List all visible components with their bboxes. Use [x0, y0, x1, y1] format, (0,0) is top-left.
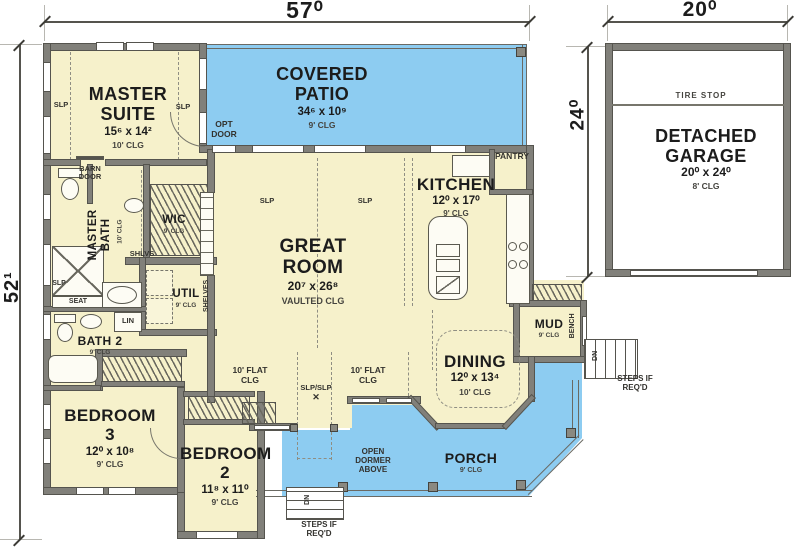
open-dormer-label: OPEN DORMER ABOVE [346, 448, 400, 475]
patio-rail-right [522, 44, 527, 150]
flat-clg-label-left: 10' FLAT CLG [222, 366, 278, 385]
tub-master-basin [107, 286, 137, 304]
room-clg-wic: 9' CLG [156, 228, 192, 235]
garage-wall [606, 44, 612, 276]
dormer-line [297, 352, 298, 460]
wall [106, 160, 206, 165]
window [196, 531, 238, 539]
bedroom2-closet-hatch [242, 402, 276, 424]
tub-bath2 [48, 355, 98, 383]
room-size-kitchen: 12⁰ x 17⁰ [414, 195, 498, 208]
porch-post [516, 480, 526, 490]
wall [208, 150, 214, 192]
flat-clg-label-right: 10' FLAT CLG [340, 366, 396, 385]
dim-house-width: 57⁰ [250, 0, 360, 24]
pantry-label: PANTRY [492, 152, 532, 162]
room-label-mud: MUD [526, 318, 572, 331]
steps-label-right: STEPS IF REQ'D [606, 375, 664, 393]
room-clg-master-bath: 10' CLG [116, 212, 123, 252]
wall [200, 146, 532, 152]
slp-label: SLP [48, 101, 74, 109]
room-clg-great-room: VAULTED CLG [268, 296, 358, 306]
room-label-bath2: BATH 2 [70, 335, 130, 348]
wall [44, 44, 206, 50]
patio-door [252, 145, 304, 153]
dormer-line [297, 458, 332, 459]
bedroom2-closet-hatch [188, 396, 250, 420]
bedroom3-closet-hatch [102, 356, 182, 382]
room-clg-master-suite: 10' CLG [88, 141, 168, 151]
sink-bath2 [80, 314, 102, 329]
room-label-porch: PORCH [440, 451, 502, 467]
slp-x-mark: ✕ [310, 392, 322, 402]
room-label-bedroom2: BEDROOM 2 [180, 444, 270, 482]
garage-wall [784, 44, 790, 276]
patio-door [314, 145, 366, 153]
slp-label: SLP [352, 197, 378, 205]
wall [102, 382, 184, 386]
window [43, 314, 51, 340]
room-clg-garage: 8' CLG [668, 182, 744, 192]
garage-door [630, 270, 758, 276]
lin-label: LIN [114, 317, 142, 325]
dn-label-bottom: DN [304, 490, 312, 510]
cooktop-burner [519, 260, 528, 269]
room-label-covered-patio: COVERED PATIO [272, 64, 372, 104]
dim-line-garage-depth [587, 47, 589, 277]
room-label-great-room: GREAT ROOM [268, 236, 358, 279]
slp-label: SLP [170, 103, 196, 111]
room-label-bedroom3: BEDROOM 3 [64, 406, 156, 444]
island-sink [436, 259, 460, 272]
window [43, 62, 51, 92]
sink-master [124, 198, 144, 213]
window [199, 58, 207, 90]
room-size-bedroom3: 12⁰ x 10⁸ [66, 446, 154, 459]
dn-label-right: DN [592, 346, 600, 366]
window [76, 487, 104, 495]
patio-door [212, 145, 236, 153]
room-size-covered-patio: 34⁶ x 10⁹ [276, 106, 368, 119]
entry-post [290, 424, 298, 432]
barn-door-panel [76, 156, 104, 160]
window [430, 145, 466, 153]
dishwasher [436, 276, 460, 294]
window [386, 398, 412, 403]
room-label-master-bath: MASTER BATH [87, 203, 113, 267]
porch-post [566, 428, 576, 438]
toilet-bath2 [54, 314, 76, 323]
room-label-dining: DINING [440, 352, 510, 371]
room-label-util: UTIL [164, 288, 208, 301]
window [43, 194, 51, 220]
window [254, 425, 290, 430]
room-label-wic: WIC [154, 214, 194, 227]
bench-label: BENCH [569, 309, 577, 343]
window [352, 398, 380, 403]
room-clg-util: 9' CLG [168, 302, 204, 309]
ceiling-break [408, 352, 409, 396]
room-label-garage: DETACHED GARAGE [648, 126, 764, 166]
room-clg-bath2: 9' CLG [78, 349, 122, 356]
slp-label: SLP [46, 280, 72, 288]
dim-garage-width: 20⁰ [645, 0, 755, 22]
island-sink [436, 244, 460, 257]
dim-garage-depth: 24⁰ [567, 93, 588, 137]
window [108, 487, 136, 495]
ceiling-break [432, 310, 433, 370]
room-size-bedroom2: 11⁸ x 11⁰ [182, 484, 268, 497]
garage-wall [606, 44, 790, 50]
patio-rail-top [203, 44, 527, 49]
barn-door-label: BARN DOOR [70, 165, 110, 182]
room-size-master-suite: 15⁶ x 14² [80, 126, 176, 139]
tire-stop-line [612, 104, 784, 106]
steps-bottom [286, 487, 344, 520]
seat-label: SEAT [56, 298, 100, 306]
patio-post [516, 47, 526, 57]
shlvs-label: SHLVS [122, 250, 162, 258]
room-clg-porch: 9' CLG [446, 467, 496, 475]
room-clg-bedroom2: 9' CLG [192, 498, 258, 508]
window [43, 438, 51, 464]
window [43, 404, 51, 430]
great-room-shelves [200, 192, 214, 276]
room-clg-covered-patio: 9' CLG [286, 121, 358, 131]
tire-stop-label: TIRE STOP [656, 92, 746, 101]
room-clg-kitchen: 9' CLG [424, 210, 488, 219]
wall [44, 386, 100, 390]
window [126, 42, 154, 51]
wall [514, 357, 586, 362]
room-clg-bedroom3: 9' CLG [76, 460, 144, 470]
mud-closet-hatch [532, 284, 582, 301]
room-label-kitchen: KITCHEN [408, 175, 504, 194]
entry-post [330, 424, 338, 432]
wall-bay-bottom [436, 424, 506, 428]
refrigerator [452, 155, 490, 177]
dormer-line [331, 352, 332, 460]
room-clg-dining: 10' CLG [444, 388, 506, 398]
room-clg-mud: 9' CLG [529, 332, 569, 339]
dim-house-depth: 52¹ [1, 265, 23, 309]
steps-label-bottom: STEPS IF REQ'D [290, 521, 348, 539]
cooktop-burner [508, 242, 517, 251]
porch-post [428, 482, 438, 492]
wall [140, 330, 216, 335]
floor-plan: 57⁰ 20⁰ 52¹ 24⁰ [0, 0, 800, 551]
slp-label: SLP [254, 197, 280, 205]
room-size-garage: 20⁰ x 24⁰ [656, 166, 756, 179]
window [43, 116, 51, 154]
ceiling-break [141, 170, 142, 256]
cooktop-burner [508, 260, 517, 269]
opt-door-label: OPT DOOR [204, 120, 244, 139]
room-size-dining: 12⁰ x 13⁴ [438, 372, 512, 385]
room-size-great-room: 20⁷ x 26⁸ [266, 280, 360, 293]
ceiling-break [404, 158, 405, 306]
window [96, 42, 124, 51]
room-label-master-suite: MASTER SUITE [78, 84, 178, 124]
shelves-label: SHELVES [203, 273, 211, 319]
cooktop-burner [519, 242, 528, 251]
